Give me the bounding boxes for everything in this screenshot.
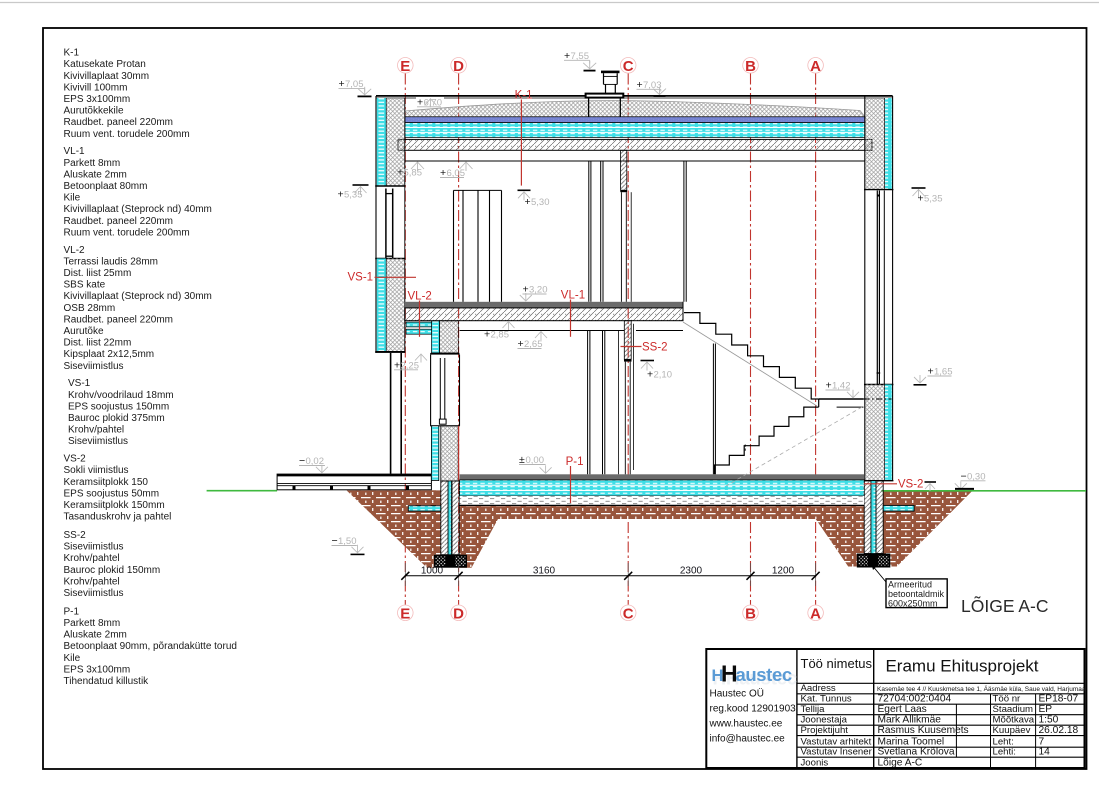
svg-text:SS-2: SS-2 <box>642 341 668 353</box>
svg-text:Kipsplaat 2x12,5mm: Kipsplaat 2x12,5mm <box>64 349 155 360</box>
svg-text:+: + <box>525 196 531 208</box>
svg-text:VS-2: VS-2 <box>898 479 924 491</box>
svg-text:5,85: 5,85 <box>404 167 423 178</box>
svg-text:Joonis: Joonis <box>801 757 829 768</box>
svg-text:Ruum vent. torudele 200mm: Ruum vent. torudele 200mm <box>64 129 190 140</box>
svg-text:VL-1: VL-1 <box>64 146 86 157</box>
svg-text:Sokli viimistlus: Sokli viimistlus <box>64 465 129 476</box>
svg-text:Keramsiitplokk 150mm: Keramsiitplokk 150mm <box>64 500 165 511</box>
svg-text:14: 14 <box>1039 747 1051 758</box>
svg-text:C: C <box>623 58 634 75</box>
svg-text:Kivivillaplaat (Steprock nd) 3: Kivivillaplaat (Steprock nd) 30mm <box>64 291 212 302</box>
svg-text:Kivivill 100mm: Kivivill 100mm <box>64 82 128 93</box>
svg-text:E: E <box>400 58 410 75</box>
svg-text:Tasanduskrohv ja pahtel: Tasanduskrohv ja pahtel <box>64 512 172 523</box>
svg-text:SS-2: SS-2 <box>64 530 87 541</box>
svg-text:B: B <box>745 58 756 75</box>
svg-text:Kuupäev: Kuupäev <box>993 725 1031 736</box>
svg-text:+: + <box>484 329 490 341</box>
svg-text:EPS soojustus 150mm: EPS soojustus 150mm <box>68 401 169 412</box>
svg-text:Svetlana Krõlova: Svetlana Krõlova <box>878 747 955 758</box>
svg-text:Raudbet. paneel 220mm: Raudbet. paneel 220mm <box>64 117 174 128</box>
svg-text:K-1: K-1 <box>64 48 80 59</box>
svg-text:Krohv/voodrilaud 18mm: Krohv/voodrilaud 18mm <box>68 390 174 401</box>
svg-text:Krohv/pahtel: Krohv/pahtel <box>64 553 120 564</box>
svg-text:Dist. liist 25mm: Dist. liist 25mm <box>64 268 132 279</box>
svg-text:Bauroc plokid 375mm: Bauroc plokid 375mm <box>68 413 165 424</box>
svg-text:+: + <box>647 369 653 381</box>
svg-text:Krohv/pahtel: Krohv/pahtel <box>64 576 120 587</box>
svg-text:Joonestaja: Joonestaja <box>801 715 848 726</box>
svg-text:Siseviimistlus: Siseviimistlus <box>64 542 124 553</box>
svg-text:1000: 1000 <box>421 565 444 576</box>
svg-text:Ruum vent. torudele 200mm: Ruum vent. torudele 200mm <box>64 227 190 238</box>
svg-text:3160: 3160 <box>533 565 556 576</box>
svg-text:Tellija: Tellija <box>801 704 826 715</box>
svg-text:2,10: 2,10 <box>654 370 673 381</box>
svg-text:VS-1: VS-1 <box>68 378 91 389</box>
svg-text:EPS 3x100mm: EPS 3x100mm <box>64 94 131 105</box>
svg-text:Siseviimistlus: Siseviimistlus <box>64 361 124 372</box>
svg-text:D: D <box>453 605 464 622</box>
svg-text:5,35: 5,35 <box>344 190 363 201</box>
svg-text:Aadress: Aadress <box>801 683 836 694</box>
svg-text:VS-1: VS-1 <box>348 272 374 284</box>
svg-text:72704:002:0404: 72704:002:0404 <box>878 694 952 705</box>
svg-text:Katusekate Protan: Katusekate Protan <box>64 59 146 70</box>
svg-text:1200: 1200 <box>772 565 795 576</box>
svg-text:LÕIGE A-C: LÕIGE A-C <box>961 595 1049 616</box>
svg-text:E: E <box>400 605 410 622</box>
svg-text:Aluskate 2mm: Aluskate 2mm <box>64 630 127 641</box>
svg-text:reg.kood 12901903: reg.kood 12901903 <box>710 704 797 715</box>
svg-text:Kivivillaplaat 30mm: Kivivillaplaat 30mm <box>64 71 150 82</box>
svg-text:26.02.18: 26.02.18 <box>1039 725 1079 736</box>
svg-text:5,30: 5,30 <box>531 197 550 208</box>
svg-text:www.haustec.ee: www.haustec.ee <box>709 719 783 730</box>
svg-text:Parkett 8mm: Parkett 8mm <box>64 618 121 629</box>
svg-text:Tihendatud killustik: Tihendatud killustik <box>64 676 150 687</box>
svg-text:Aurutõke: Aurutõke <box>64 326 104 337</box>
svg-text:Terrassi laudis 28mm: Terrassi laudis 28mm <box>64 256 158 267</box>
svg-text:Haustec OÜ: Haustec OÜ <box>710 688 764 700</box>
svg-text:Töö nr: Töö nr <box>993 694 1022 705</box>
svg-text:Siseviimistlus: Siseviimistlus <box>68 436 128 447</box>
svg-text:+: + <box>397 166 403 178</box>
svg-text:+: + <box>918 193 924 205</box>
svg-text:Staadium: Staadium <box>993 704 1034 715</box>
svg-text:Mõõtkava: Mõõtkava <box>993 715 1035 726</box>
svg-text:1:50: 1:50 <box>1039 715 1059 726</box>
svg-text:+: + <box>338 189 344 201</box>
svg-text:austec: austec <box>736 664 792 685</box>
svg-text:P-1: P-1 <box>64 606 80 617</box>
svg-text:B: B <box>745 605 756 622</box>
svg-text:Armeeritud: Armeeritud <box>888 580 932 590</box>
svg-text:C: C <box>623 605 634 622</box>
svg-text:Bauroc plokid 150mm: Bauroc plokid 150mm <box>64 565 161 576</box>
svg-text:EP18-07: EP18-07 <box>1039 694 1079 705</box>
svg-text:Rasmus Kuusemets: Rasmus Kuusemets <box>878 725 969 736</box>
svg-text:Lehti:: Lehti: <box>993 747 1016 758</box>
svg-text:EPS 3x100mm: EPS 3x100mm <box>64 664 131 675</box>
svg-text:Projektijuht: Projektijuht <box>801 725 849 736</box>
svg-text:Lõige A-C: Lõige A-C <box>878 757 923 768</box>
svg-text:2,85: 2,85 <box>491 330 510 341</box>
svg-text:EP: EP <box>1039 704 1053 715</box>
svg-text:Betoonplaat 90mm, põrandakütte: Betoonplaat 90mm, põrandakütte torud <box>64 641 237 652</box>
svg-text:Kile: Kile <box>64 653 81 664</box>
svg-text:Dist. liist 22mm: Dist. liist 22mm <box>64 338 132 349</box>
svg-text:Raudbet. paneel 220mm: Raudbet. paneel 220mm <box>64 314 174 325</box>
svg-text:K-1: K-1 <box>515 90 533 102</box>
svg-text:Mark Allikmäe: Mark Allikmäe <box>878 715 942 726</box>
svg-text:VS-2: VS-2 <box>64 454 87 465</box>
svg-text:VL-2: VL-2 <box>64 245 86 256</box>
svg-text:A: A <box>810 605 821 622</box>
svg-text:Kasemäe tee 4 // Kuuskmetsa te: Kasemäe tee 4 // Kuuskmetsa tee 1, Ääsmä… <box>877 685 1086 693</box>
svg-text:Eramu Ehitusprojekt: Eramu Ehitusprojekt <box>885 657 1038 676</box>
svg-text:Siseviimistlus: Siseviimistlus <box>64 588 124 599</box>
svg-text:Keramsiitplokk 150: Keramsiitplokk 150 <box>64 477 149 488</box>
svg-text:Töö nimetus: Töö nimetus <box>801 656 873 671</box>
svg-text:Vastutav Insener: Vastutav Insener <box>801 747 873 758</box>
svg-text:VL-1: VL-1 <box>561 289 585 301</box>
svg-text:A: A <box>810 58 821 75</box>
svg-text:info@haustec.ee: info@haustec.ee <box>710 734 786 745</box>
svg-text:Krohv/pahtel: Krohv/pahtel <box>68 425 124 436</box>
svg-text:Aluskate 2mm: Aluskate 2mm <box>64 169 127 180</box>
svg-text:Betoonplaat 80mm: Betoonplaat 80mm <box>64 181 148 192</box>
svg-text:Aurutõkkekile: Aurutõkkekile <box>64 106 124 117</box>
svg-text:Egert Laas: Egert Laas <box>878 704 927 715</box>
svg-text:Parkett 8mm: Parkett 8mm <box>64 158 121 169</box>
svg-text:600x250mm: 600x250mm <box>888 599 938 609</box>
svg-text:betoontaldmik: betoontaldmik <box>888 589 945 599</box>
svg-text:Kivivillaplaat (Steprock nd) 4: Kivivillaplaat (Steprock nd) 40mm <box>64 204 212 215</box>
svg-text:D: D <box>453 58 464 75</box>
svg-text:5,35: 5,35 <box>924 194 943 205</box>
svg-text:OSB 28mm: OSB 28mm <box>64 303 116 314</box>
svg-text:Kile: Kile <box>64 193 81 204</box>
svg-text:P-1: P-1 <box>566 456 584 468</box>
svg-text:2300: 2300 <box>680 565 703 576</box>
svg-text:Kat. Tunnus: Kat. Tunnus <box>801 694 852 705</box>
svg-text:Raudbet. paneel 220mm: Raudbet. paneel 220mm <box>64 216 174 227</box>
svg-text:EPS soojustus 50mm: EPS soojustus 50mm <box>64 488 160 499</box>
svg-text:SBS kate: SBS kate <box>64 280 106 291</box>
